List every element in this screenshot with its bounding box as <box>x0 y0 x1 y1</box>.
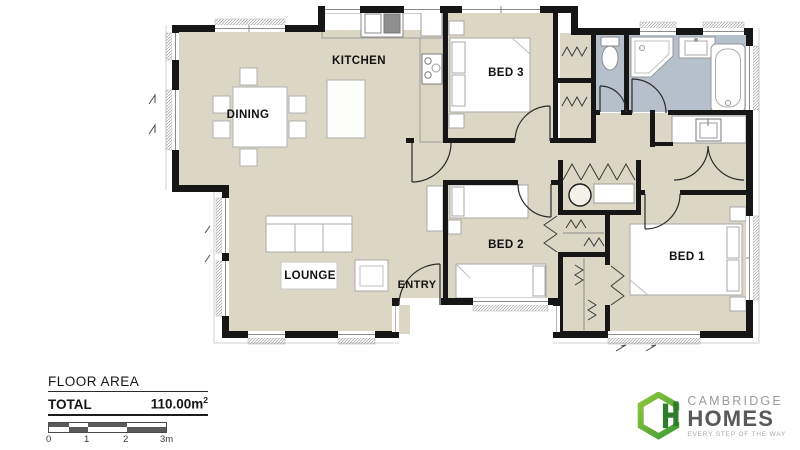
logo-hexagon-icon <box>634 392 680 442</box>
floor-area-heading: FLOOR AREA <box>48 374 208 392</box>
room-label-bed2: BED 2 <box>468 239 544 251</box>
kitchen-island <box>327 80 365 138</box>
room-label-bed1: BED 1 <box>648 251 726 263</box>
total-value: 110.00m2 <box>151 395 208 412</box>
total-label: TOTAL <box>48 397 92 412</box>
scale-bar <box>48 422 167 433</box>
room-label-bed3: BED 3 <box>468 67 544 79</box>
floor-plan-sheet: KITCHEN DINING BED 3 BED 2 BED 1 LOUNGE … <box>0 0 800 450</box>
logo-brand-main: HOMES <box>687 408 786 430</box>
total-exponent: 2 <box>203 395 208 405</box>
armchair <box>355 260 388 291</box>
logo-wordmark: CAMBRIDGE HOMES EVERY STEP OF THE WAY <box>687 395 786 439</box>
room-label-dining: DINING <box>206 109 290 121</box>
room-label-entry: ENTRY <box>388 279 446 291</box>
hot-water-cylinder <box>569 184 591 206</box>
toilet <box>601 37 619 70</box>
sofa <box>266 216 352 252</box>
bathtub <box>711 44 745 112</box>
laundry-tub <box>672 116 746 143</box>
vanity <box>679 37 715 58</box>
cambridge-homes-logo: CAMBRIDGE HOMES EVERY STEP OF THE WAY <box>634 392 786 442</box>
kitchen-sink <box>361 9 403 37</box>
room-label-lounge: LOUNGE <box>268 270 352 282</box>
room-label-kitchen: KITCHEN <box>317 55 401 67</box>
cooktop <box>422 54 442 84</box>
logo-tagline: EVERY STEP OF THE WAY <box>687 432 786 439</box>
cupboard-shelf <box>594 184 634 203</box>
floor-area-summary: FLOOR AREA TOTAL 110.00m2 0 1 2 3m <box>48 374 208 446</box>
scale-tick-labels: 0 1 2 3m <box>48 434 188 446</box>
floor-area-total-row: TOTAL 110.00m2 <box>48 392 208 416</box>
fridge <box>421 11 442 36</box>
